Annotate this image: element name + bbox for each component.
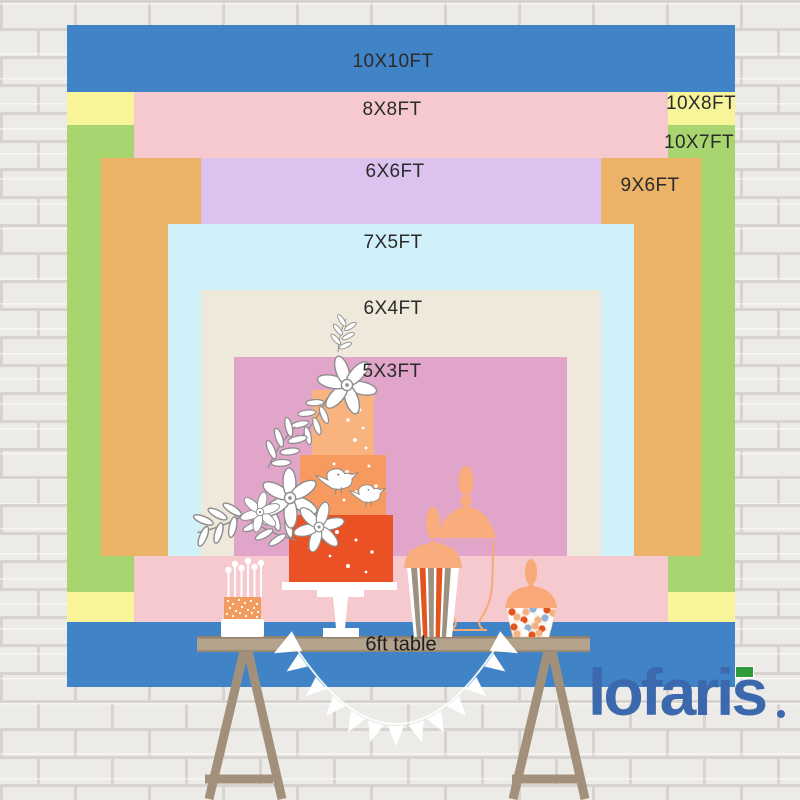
size-label-10x8: 10X8FT: [666, 93, 736, 115]
size-label-10x7: 10X7FT: [664, 132, 734, 154]
logo-green-badge-icon: [735, 666, 754, 678]
candy-jar-icon: [505, 559, 557, 639]
logo-dot-icon: [777, 710, 785, 718]
size-label-8x8: 8X8FT: [362, 99, 421, 121]
wedding-cake-icon: [185, 312, 393, 582]
size-label-6x6: 6X6FT: [365, 161, 424, 183]
table-size-label: 6ft table: [365, 634, 436, 657]
size-label-10x10: 10X10FT: [353, 51, 434, 73]
lofaris-logo: lofaris: [588, 659, 798, 729]
size-label-9x6: 9X6FT: [620, 175, 679, 197]
size-label-5x3: 5X3FT: [362, 361, 421, 383]
size-label-6x4: 6X4FT: [363, 298, 422, 320]
size-label-7x5: 7X5FT: [363, 232, 422, 254]
table-legs: [205, 651, 585, 799]
mini-cake-with-candles-icon: [221, 558, 264, 637]
cake-stand-icon: [282, 582, 397, 637]
